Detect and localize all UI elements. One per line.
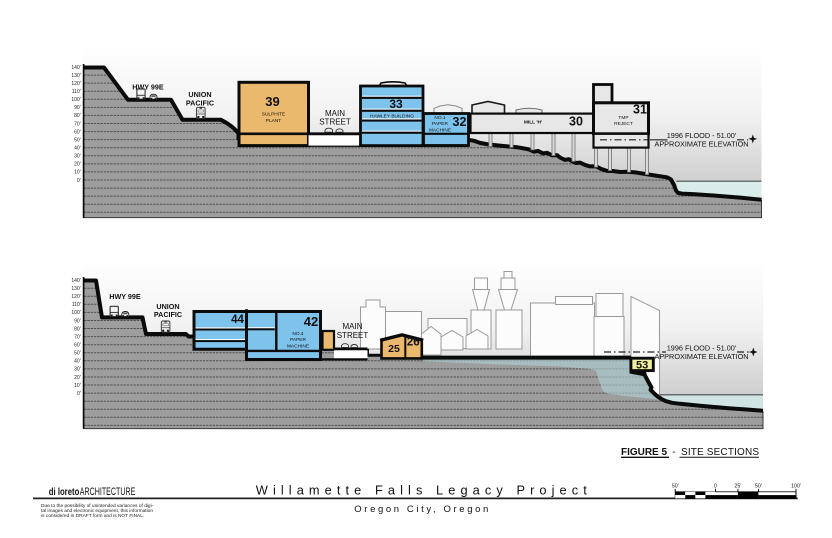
svg-text:50': 50' — [74, 137, 81, 143]
svg-text:33: 33 — [389, 97, 403, 111]
svg-text:PAPER: PAPER — [432, 121, 448, 127]
svg-text:120': 120' — [71, 294, 80, 300]
svg-text:130': 130' — [71, 73, 80, 79]
svg-text:25': 25' — [735, 484, 742, 490]
svg-text:NO.4: NO.4 — [292, 331, 304, 337]
svg-text:10': 10' — [74, 383, 81, 389]
svg-text:STREET: STREET — [337, 331, 369, 340]
svg-text:42: 42 — [304, 314, 318, 329]
svg-text:PACIFIC: PACIFIC — [154, 310, 182, 319]
svg-text:SULPHITE: SULPHITE — [262, 112, 285, 118]
svg-text:140': 140' — [71, 278, 80, 284]
svg-text:90': 90' — [74, 318, 81, 324]
svg-text:130': 130' — [71, 286, 80, 292]
svg-text:39: 39 — [265, 94, 279, 109]
svg-text:MAIN: MAIN — [325, 109, 345, 118]
svg-text:32: 32 — [453, 115, 467, 129]
svg-text:0': 0' — [77, 178, 81, 184]
svg-text:HWY 99E: HWY 99E — [109, 292, 141, 301]
svg-text:tal images and electronic equi: tal images and electronic equipment, thi… — [41, 508, 153, 514]
svg-text:-: - — [672, 447, 675, 458]
svg-text:100': 100' — [71, 310, 80, 316]
svg-text:20': 20' — [74, 162, 81, 168]
svg-text:40': 40' — [74, 359, 81, 365]
svg-text:MACHINE: MACHINE — [429, 128, 451, 134]
svg-text:80': 80' — [74, 113, 81, 119]
svg-text:120': 120' — [71, 81, 80, 87]
svg-text:PAPER: PAPER — [290, 337, 306, 343]
svg-text:is considered in DRAFT form an: is considered in DRAFT form and is NOT F… — [41, 513, 144, 519]
svg-text:Willamette Falls Legacy Projec: Willamette Falls Legacy Project — [256, 482, 587, 497]
svg-text:ARCHITECTURE: ARCHITECTURE — [80, 486, 136, 498]
svg-text:25: 25 — [388, 343, 400, 355]
svg-text:APPROXIMATE ELEVATION: APPROXIMATE ELEVATION — [654, 139, 748, 148]
svg-text:APPROXIMATE ELEVATION: APPROXIMATE ELEVATION — [654, 352, 748, 361]
svg-text:0': 0' — [77, 391, 81, 397]
svg-text:PACIFIC: PACIFIC — [186, 99, 214, 108]
svg-text:100': 100' — [791, 484, 801, 490]
svg-text:110': 110' — [72, 302, 81, 308]
svg-text:Due to the possibility of unin: Due to the possibility of unintended var… — [41, 503, 154, 509]
svg-text:10': 10' — [74, 170, 81, 176]
svg-text:60': 60' — [74, 129, 81, 135]
svg-text:TMP: TMP — [618, 115, 628, 121]
svg-text:50': 50' — [74, 351, 81, 357]
svg-text:31: 31 — [633, 103, 647, 117]
svg-text:MILL 'H': MILL 'H' — [524, 120, 542, 126]
svg-text:53: 53 — [636, 360, 648, 372]
svg-text:30: 30 — [569, 114, 583, 128]
svg-text:60': 60' — [74, 343, 81, 349]
svg-text:100': 100' — [71, 97, 80, 103]
svg-text:di loreto: di loreto — [49, 487, 80, 498]
svg-text:30': 30' — [74, 154, 81, 160]
svg-text:FIGURE 5: FIGURE 5 — [621, 447, 667, 458]
svg-text:50': 50' — [755, 484, 762, 490]
svg-text:30': 30' — [74, 367, 81, 373]
svg-text:110': 110' — [72, 89, 81, 95]
svg-text:0: 0 — [714, 484, 717, 490]
svg-text:40': 40' — [74, 146, 81, 152]
svg-text:44: 44 — [231, 314, 244, 326]
svg-text:50': 50' — [672, 484, 679, 490]
svg-text:Oregon City, Oregon: Oregon City, Oregon — [354, 504, 488, 515]
svg-text:STREET: STREET — [319, 118, 351, 127]
svg-text:26: 26 — [407, 336, 420, 348]
svg-text:140': 140' — [71, 65, 80, 71]
svg-text:PLANT: PLANT — [266, 118, 282, 124]
svg-text:90': 90' — [74, 105, 81, 111]
svg-text:REJECT: REJECT — [614, 121, 633, 127]
svg-text:HAWLEY BUILDING: HAWLEY BUILDING — [370, 114, 414, 120]
svg-text:70': 70' — [74, 121, 81, 127]
svg-text:20': 20' — [74, 375, 81, 381]
svg-text:70': 70' — [74, 334, 81, 340]
svg-text:MACHINE: MACHINE — [287, 344, 309, 350]
svg-text:NO.1: NO.1 — [434, 115, 446, 121]
svg-text:SITE SECTIONS: SITE SECTIONS — [681, 447, 759, 458]
svg-text:80': 80' — [74, 326, 81, 332]
